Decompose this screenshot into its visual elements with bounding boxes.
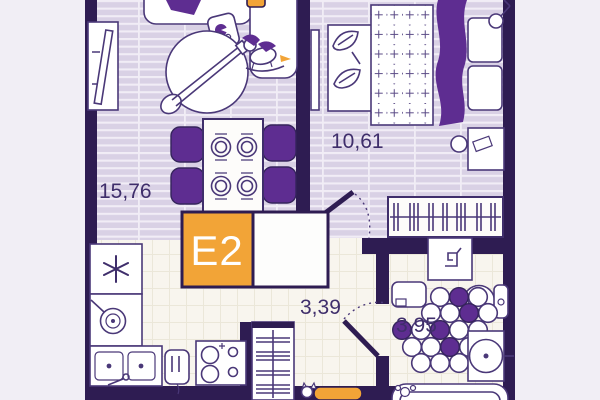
living-room-area-label: 15,76 [99,180,152,203]
wall-hall-bath-lower [376,356,389,386]
bed-bench-leaves [328,25,372,111]
counter-pan [90,294,142,346]
kitchen-sink [90,346,162,386]
chair [171,127,204,162]
mattress-tufting [371,5,433,125]
stool [451,136,467,152]
chair [171,168,204,204]
hallway-area-label: 3,39 [300,296,341,319]
floor-plan: E2 15,76 10,61 3,39 3,95 [0,0,600,400]
unit-badge-white-cell [253,212,328,287]
wall-living-bedroom [296,0,310,213]
fridge-spot [90,244,142,294]
wardrobe-hangers [252,322,294,400]
nightstand [468,128,504,170]
unit-badge: E2 [182,212,328,287]
chair [263,167,296,203]
wall-hall-bath-upper [376,238,389,304]
shoe-bench [314,387,362,400]
bathroom-area-label: 3,95 [396,314,437,337]
mirror [311,30,319,110]
closet-hangers [388,197,503,237]
toy-orange [247,0,265,7]
washing-machine [392,282,426,307]
bedroom-area-label: 10,61 [331,130,384,153]
unit-label: E2 [190,227,243,274]
chair [263,125,296,161]
dining-table [203,119,263,213]
bathtub [392,384,508,400]
stove [196,341,246,385]
pillow [468,66,502,110]
vent-box [428,238,472,280]
floor-plan-page: E2 15,76 10,61 3,39 3,95 [0,0,600,400]
